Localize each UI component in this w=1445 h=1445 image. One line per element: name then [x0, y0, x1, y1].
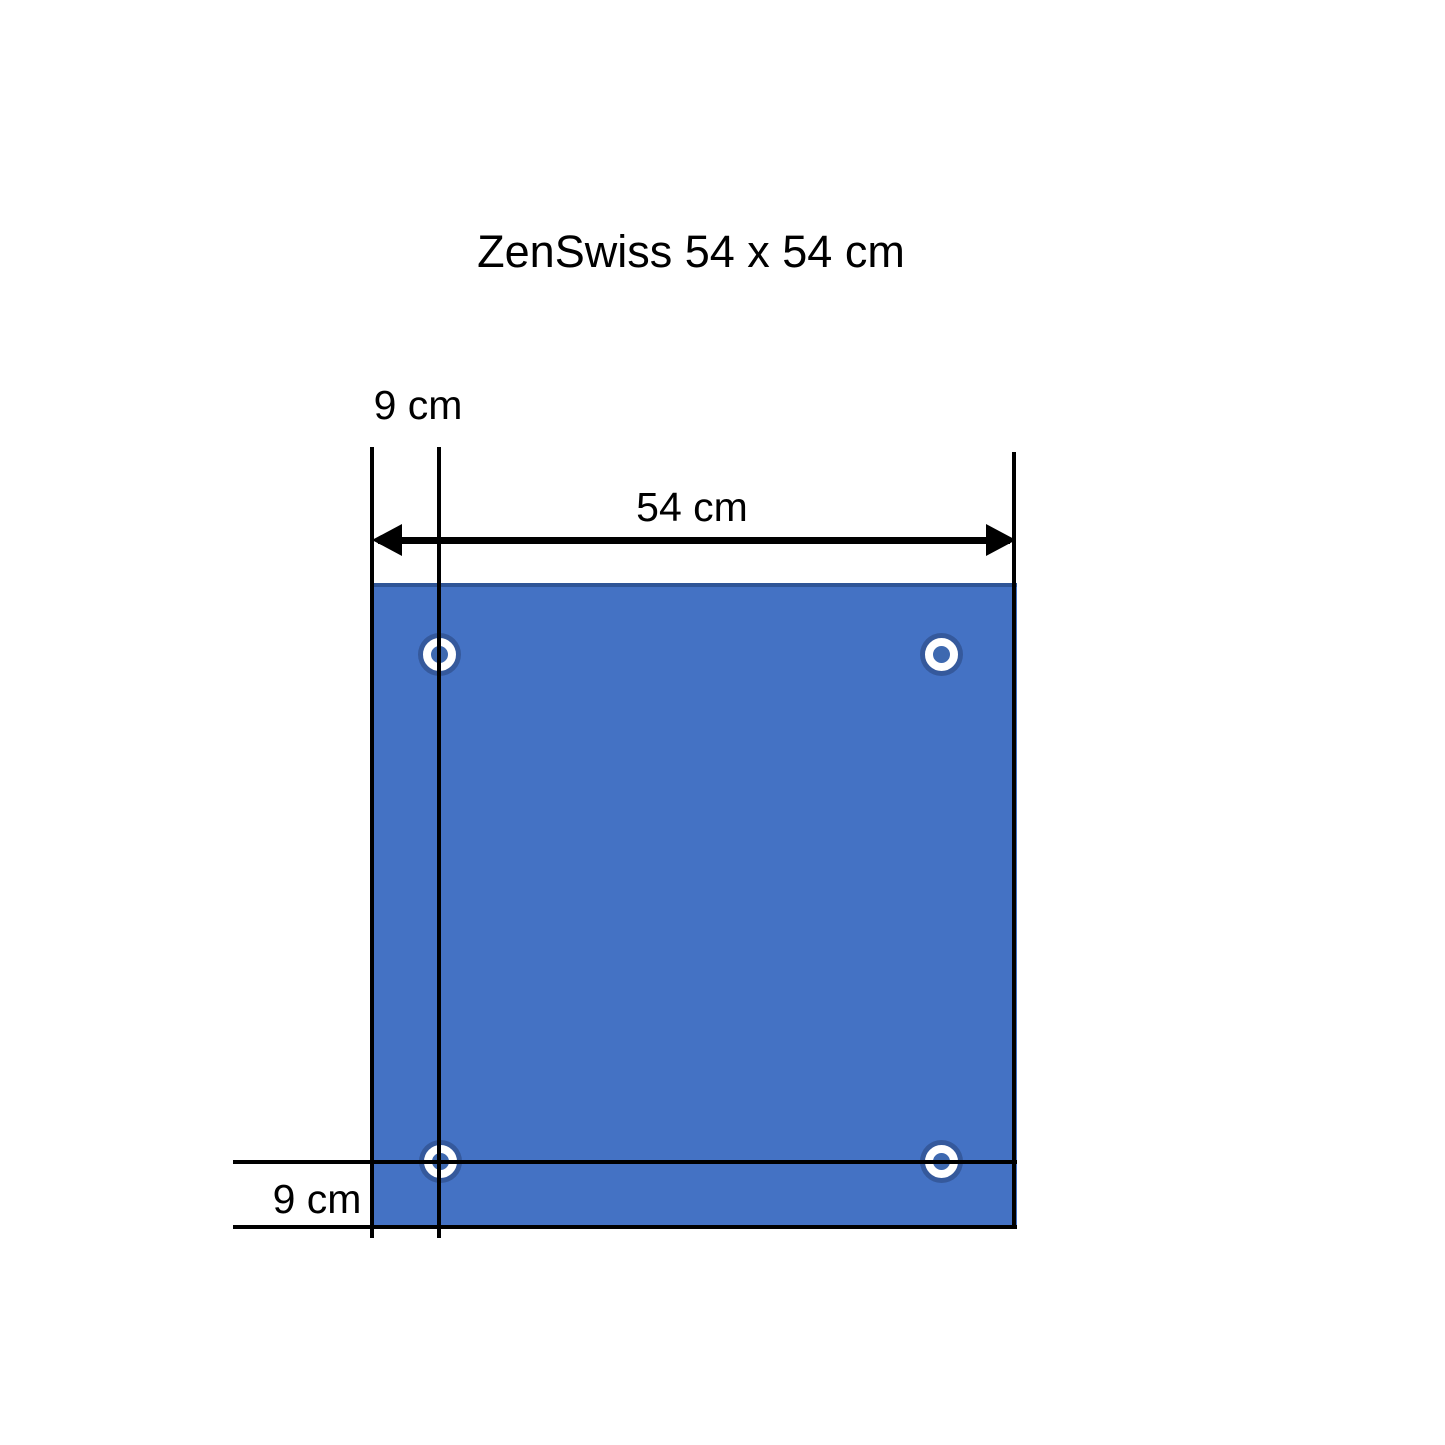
grommet-top-right-icon: [925, 638, 958, 671]
dim-label-width: 54 cm: [636, 485, 748, 530]
dim-label-grommet-offset-top: 9 cm: [374, 383, 463, 428]
technical-drawing-canvas: ZenSwiss 54 x 54 cm 9 cm 54 cm 9 cm: [0, 0, 1445, 1445]
extension-line-left-grommet: [437, 447, 441, 1238]
extension-line-bottom-edge: [233, 1225, 1017, 1229]
panel-rectangle: [372, 583, 1017, 1229]
arrow-shaft: [378, 537, 1010, 544]
extension-line-left-edge: [370, 447, 374, 1238]
arrowhead-right-icon: [986, 524, 1016, 556]
extension-line-bottom-grommet-row: [233, 1160, 1017, 1164]
dim-label-grommet-offset-bottom: 9 cm: [273, 1177, 362, 1222]
drawing-title: ZenSwiss 54 x 54 cm: [477, 227, 905, 277]
extension-line-right-edge: [1012, 452, 1016, 1229]
